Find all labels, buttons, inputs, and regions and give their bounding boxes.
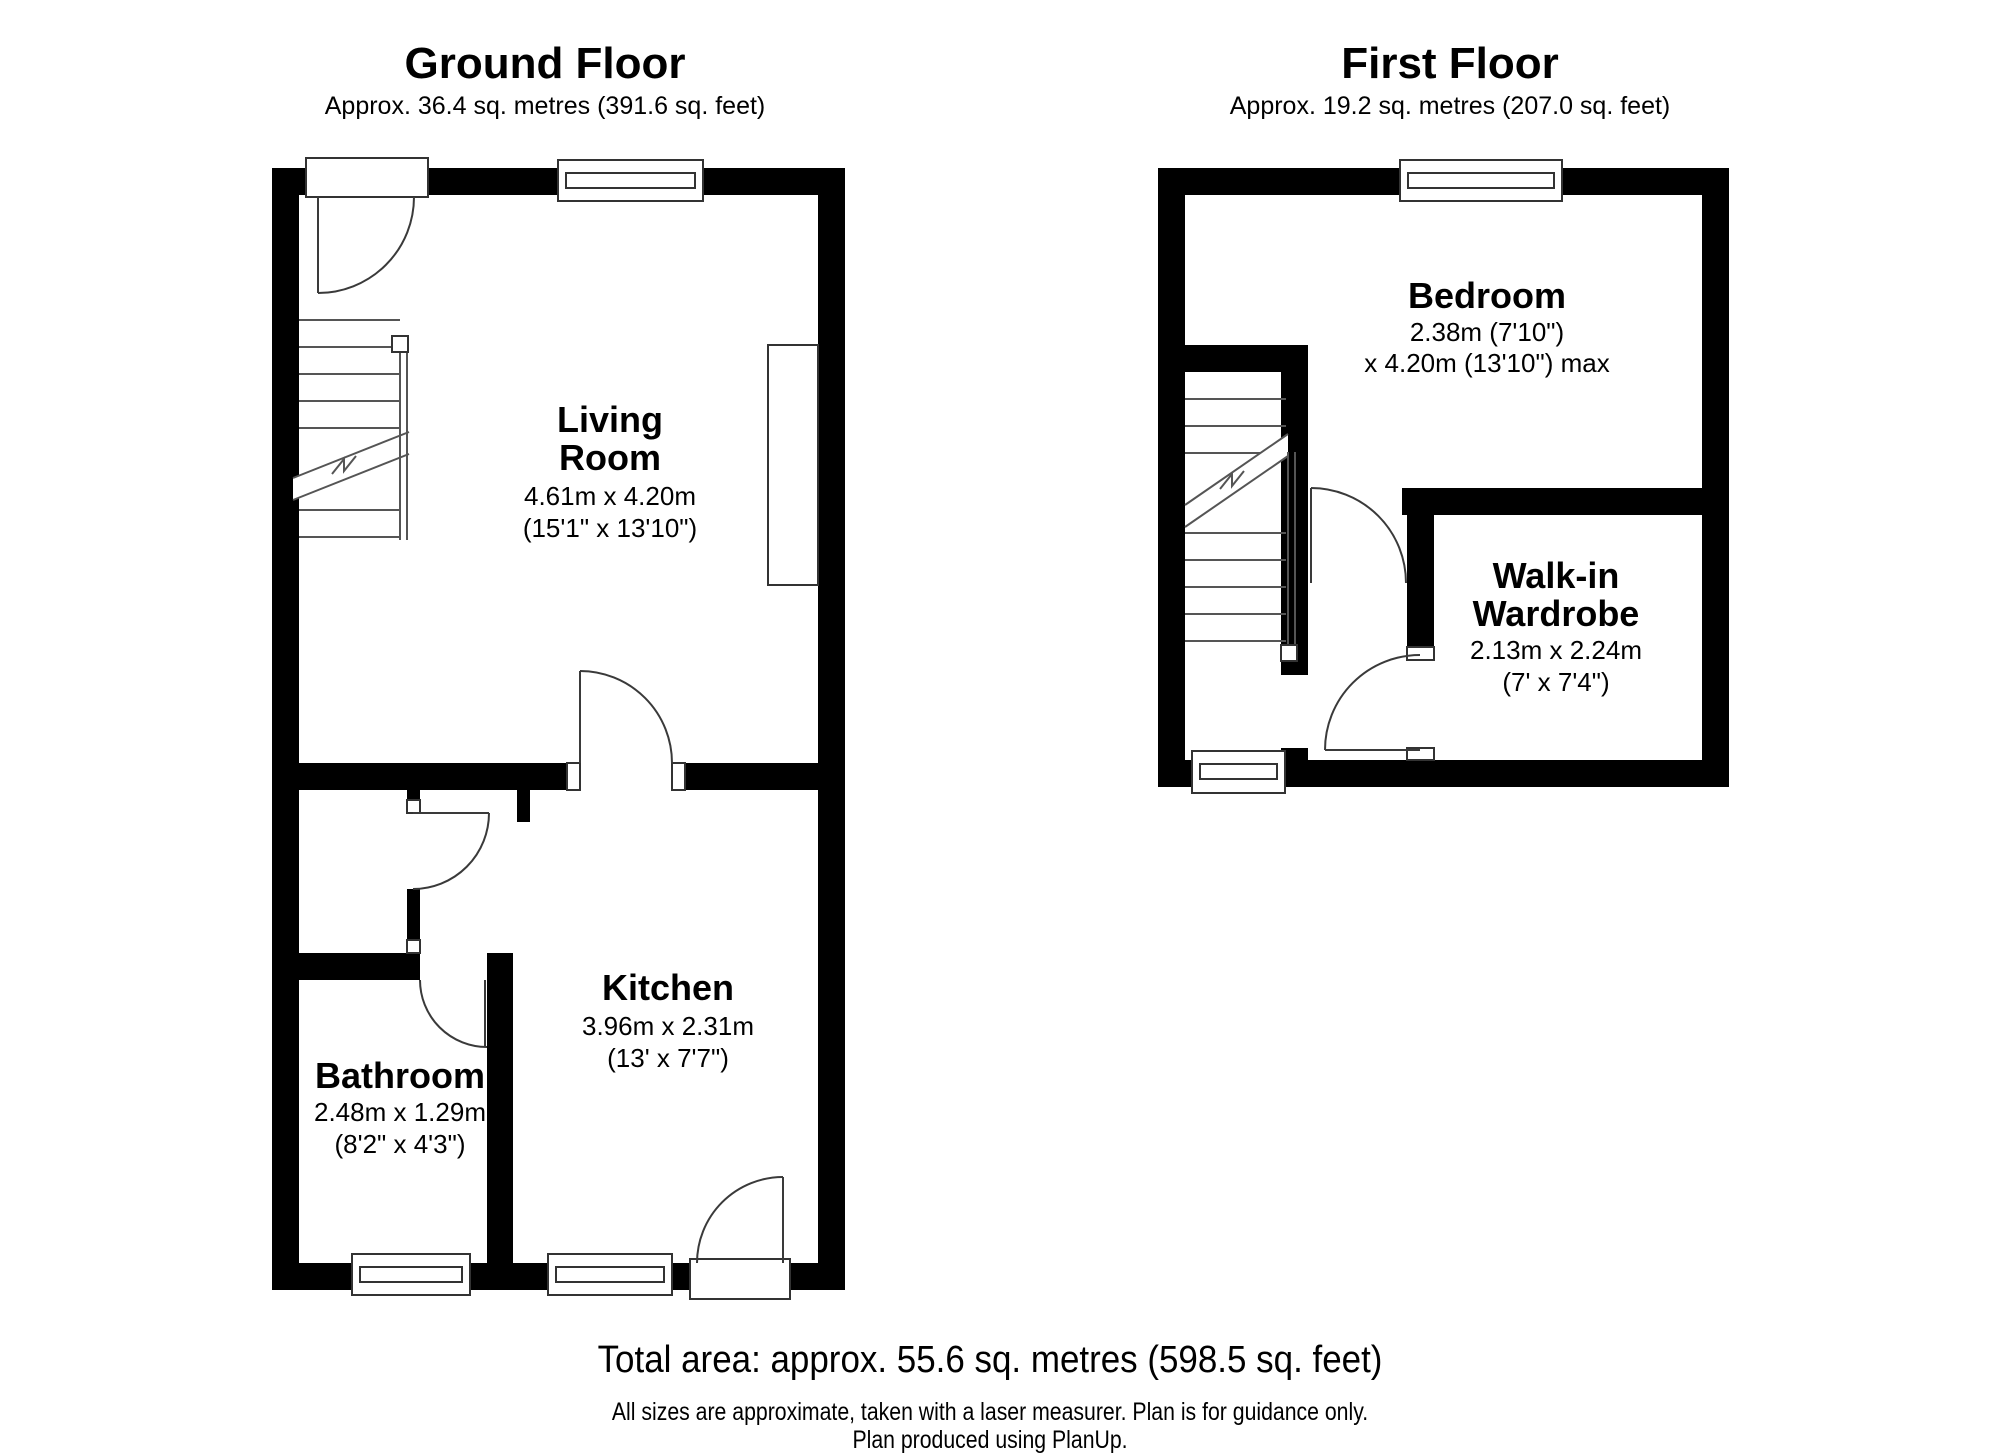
kitchen-window-glazing bbox=[556, 1267, 664, 1282]
room-dims-metric: 2.13m x 2.24m bbox=[1470, 635, 1642, 665]
bathroom-kitchen-wall bbox=[487, 953, 513, 1290]
bathroom-door-swing bbox=[420, 980, 487, 1047]
door-jamb bbox=[407, 940, 420, 953]
footer: Total area: approx. 55.6 sq. metres (598… bbox=[598, 1338, 1383, 1454]
bathroom-label: Bathroom 2.48m x 1.29m (8'2" x 4'3") bbox=[314, 1055, 486, 1159]
door-jamb bbox=[1407, 647, 1434, 660]
ground-floor-area: Approx. 36.4 sq. metres (391.6 sq. feet) bbox=[325, 92, 766, 120]
bedroom-window-glazing bbox=[1408, 173, 1554, 188]
stairs-first bbox=[1185, 399, 1297, 661]
door-jamb bbox=[672, 763, 685, 790]
hall-door-swing bbox=[413, 813, 489, 889]
newel-post bbox=[1281, 645, 1297, 661]
living-kitchen-wall bbox=[672, 763, 818, 790]
back-door-recess bbox=[690, 1259, 790, 1299]
front-window-glazing bbox=[566, 173, 695, 188]
kitchen-label: Kitchen 3.96m x 2.31m (13' x 7'7") bbox=[582, 967, 754, 1073]
stair-treads bbox=[299, 320, 400, 537]
bedroom-door-swing bbox=[1311, 488, 1406, 583]
room-name: Bathroom bbox=[315, 1055, 485, 1096]
newel-post bbox=[392, 336, 408, 352]
stairwell-wall bbox=[1185, 345, 1308, 372]
bedroom-label: Bedroom 2.38m (7'10") x 4.20m (13'10") m… bbox=[1364, 275, 1609, 378]
stair-treads bbox=[1185, 399, 1286, 641]
living-room-door-swing bbox=[580, 671, 672, 763]
room-dims-metric: 4.61m x 4.20m bbox=[524, 481, 696, 511]
room-dims-metric: 2.48m x 1.29m bbox=[314, 1097, 486, 1127]
room-name: Room bbox=[559, 437, 661, 478]
door-jamb bbox=[567, 763, 580, 790]
wardrobe-label: Walk-in Wardrobe 2.13m x 2.24m (7' x 7'4… bbox=[1470, 555, 1642, 697]
back-door-swing bbox=[697, 1177, 783, 1263]
room-dims-imperial: x 4.20m (13'10") max bbox=[1364, 348, 1609, 378]
wardrobe-wall bbox=[1407, 515, 1434, 647]
floorplan-svg: Ground Floor Approx. 36.4 sq. metres (39… bbox=[0, 0, 2000, 1454]
ground-floor-title: Ground Floor bbox=[404, 39, 685, 88]
bathroom-wall bbox=[299, 953, 420, 980]
room-dims-imperial: (8'2" x 4'3") bbox=[335, 1129, 466, 1159]
wall-stub bbox=[517, 790, 530, 822]
credit-text: Plan produced using PlanUp. bbox=[852, 1425, 1127, 1453]
ground-floor-plan bbox=[272, 158, 845, 1299]
stair-break-mask bbox=[293, 432, 409, 500]
fitted-unit bbox=[768, 345, 818, 585]
landing-window-glazing bbox=[1200, 764, 1277, 779]
room-dims-metric: 2.38m (7'10") bbox=[1410, 317, 1564, 347]
room-name: Bedroom bbox=[1408, 275, 1566, 316]
bathroom-window-glazing bbox=[360, 1267, 462, 1282]
disclaimer-text: All sizes are approximate, taken with a … bbox=[612, 1397, 1368, 1425]
total-area-text: Total area: approx. 55.6 sq. metres (598… bbox=[598, 1338, 1383, 1381]
room-name: Kitchen bbox=[602, 967, 734, 1008]
wardrobe-door-swing bbox=[1325, 655, 1420, 750]
first-floor-plan bbox=[1158, 160, 1729, 793]
living-kitchen-wall bbox=[299, 763, 580, 790]
stairs-ground bbox=[293, 320, 409, 540]
door-jamb bbox=[407, 800, 420, 813]
room-dims-imperial: (13' x 7'7") bbox=[607, 1043, 729, 1073]
wardrobe-wall bbox=[1402, 488, 1702, 515]
front-door-swing bbox=[318, 197, 414, 293]
living-room-label: Living Room 4.61m x 4.20m (15'1" x 13'10… bbox=[523, 399, 697, 543]
first-floor-title: First Floor bbox=[1341, 39, 1559, 88]
hall-wall bbox=[407, 790, 420, 800]
room-dims-imperial: (15'1" x 13'10") bbox=[523, 513, 697, 543]
front-door-recess bbox=[306, 158, 428, 197]
room-dims-metric: 3.96m x 2.31m bbox=[582, 1011, 754, 1041]
room-name: Wardrobe bbox=[1473, 593, 1640, 634]
room-dims-imperial: (7' x 7'4") bbox=[1502, 667, 1609, 697]
room-name: Living bbox=[557, 399, 663, 440]
floorplan-page: Ground Floor Approx. 36.4 sq. metres (39… bbox=[0, 0, 2000, 1454]
room-name: Walk-in bbox=[1493, 555, 1620, 596]
first-floor-area: Approx. 19.2 sq. metres (207.0 sq. feet) bbox=[1230, 92, 1671, 120]
